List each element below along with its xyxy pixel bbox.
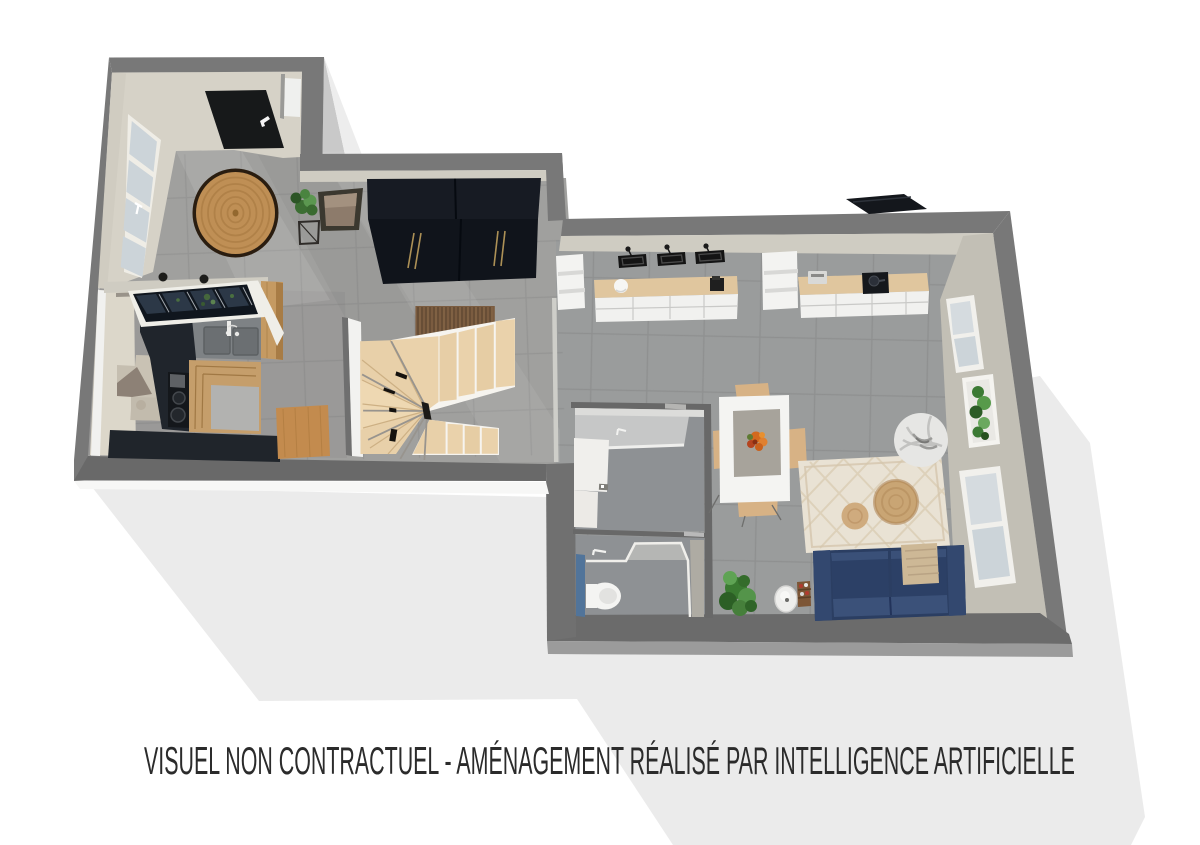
svg-text:VISUEL NON CONTRACTUEL - AMÉNA: VISUEL NON CONTRACTUEL - AMÉNAGEMENT RÉA…: [144, 739, 1075, 783]
